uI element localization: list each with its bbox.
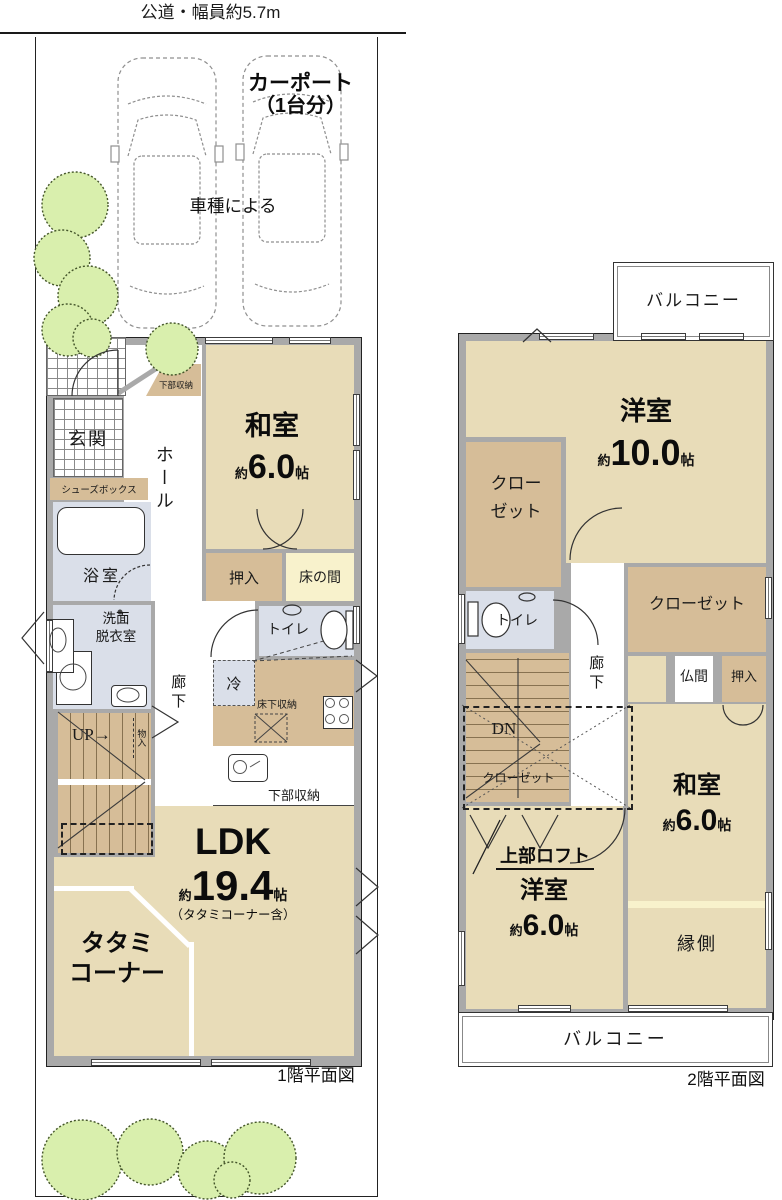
toilet-2f-label: トイレ [487, 614, 547, 630]
room-engawa [628, 908, 766, 1008]
yukashita-label: 床下収納 [246, 700, 308, 712]
shoes-box: シューズボックス [50, 478, 148, 500]
window [628, 1005, 728, 1012]
stove-icon [323, 696, 353, 729]
washitsu-2f-name: 和室 [637, 772, 757, 800]
room-toilet-1f: トイレ [259, 606, 354, 656]
under-stairs-storage [61, 823, 153, 855]
bathtub-icon [57, 507, 145, 555]
ldk-name: LDK [163, 821, 303, 864]
entrance-porch [46, 337, 126, 396]
butsuma-label: 仏間 [672, 670, 716, 686]
washitsu-1f-size: 約6.0帖 [207, 448, 337, 487]
balcony-top-label: バルコニー [614, 291, 773, 311]
sink-icon [111, 685, 147, 707]
youshitsu-10-unit: 帖 [681, 452, 695, 468]
kitchen-sink-icon [228, 754, 268, 782]
corridor-1f-label: 廊下 [168, 667, 185, 719]
window [518, 1005, 571, 1012]
washitsu-2f-step [628, 656, 666, 702]
youshitsu-10-size: 約10.0帖 [546, 432, 746, 473]
room-tokonoma: 床の間 [286, 553, 354, 601]
ldk-size-num: 19.4 [192, 862, 274, 909]
kabu-shunou-kitchen-label: 下部収納 [254, 789, 334, 804]
oshiire-2f-label: 押入 [722, 670, 766, 685]
window [765, 892, 772, 950]
ldk-unit: 帖 [273, 887, 287, 903]
window [289, 337, 331, 344]
window [91, 1059, 201, 1066]
road-label: 公道・幅員約5.7m [108, 3, 313, 23]
window [353, 450, 360, 500]
oshiire-1f-label: 押入 [229, 567, 259, 588]
floor1-caption: 1階平面図 [266, 1066, 366, 1086]
tatami-separator-v [189, 942, 194, 1056]
ldk-approx: 約 [179, 888, 192, 903]
washitsu-2f-unit: 帖 [717, 817, 731, 833]
window [211, 1059, 311, 1066]
floor1-plan: 玄関 下部収納 シューズボックス 押入 床の間 浴室 洗面 脱衣室 トイレ [46, 337, 362, 1067]
bath-label: 浴室 [53, 562, 151, 586]
floor2-caption: 2階平面図 [676, 1070, 776, 1090]
room-youshitsu-6 [466, 806, 623, 1009]
window [458, 594, 465, 644]
youshitsu-6-size: 約6.0帖 [474, 909, 614, 944]
hall-label: ホール [153, 423, 174, 535]
room-washitsu-2f [628, 704, 766, 901]
closet-1-label1: クロー [476, 474, 556, 494]
carport-title-line2: （1台分） [243, 95, 358, 118]
window [699, 333, 744, 340]
washitsu-2f-approx: 約 [663, 818, 676, 833]
corridor-2f-label: 廊下 [586, 649, 603, 699]
senmen-label-line1: 洗面 [83, 611, 149, 627]
youshitsu-10-size-num: 10.0 [610, 432, 680, 473]
tokonoma-label: 床の間 [299, 567, 341, 587]
washitsu-2f-size-num: 6.0 [676, 804, 718, 837]
ldk-size: 約19.4帖 [143, 862, 323, 910]
youshitsu-6-size-num: 6.0 [523, 909, 565, 942]
shoes-box-label: シューズボックス [61, 482, 136, 496]
tatami-corner-label1: タタミ [55, 930, 179, 958]
youshitsu-6-approx: 約 [510, 923, 523, 938]
window [641, 333, 686, 340]
corridor-by-toilet [213, 601, 255, 660]
youshitsu-10-name: 洋室 [566, 397, 726, 427]
closet-1-label2: ゼット [476, 502, 556, 522]
engawa-divider [628, 901, 766, 908]
youshitsu-10-approx: 約 [597, 453, 610, 468]
balcony-bottom-label: バルコニー [459, 1029, 772, 1050]
balcony-bottom: バルコニー [458, 1012, 773, 1067]
window [765, 577, 772, 619]
floor2-plan: 洋室 約10.0帖 クロー ゼット トイレ 廊下 クローゼット 仏間 押入 DN… [458, 333, 774, 1020]
road-line [0, 32, 406, 34]
engawa-label: 縁側 [647, 934, 747, 955]
washitsu-2f-size: 約6.0帖 [627, 804, 767, 839]
fridge-label: 冷 [226, 673, 241, 694]
balcony-top: バルコニー [613, 262, 774, 341]
loft-label: 上部ロフト [496, 846, 594, 870]
washitsu-1f-approx: 約 [235, 466, 248, 481]
tatami-separator-h [54, 886, 134, 891]
room-washitsu-1f [206, 345, 354, 549]
genkan-label: 玄関 [68, 425, 108, 451]
carport-title-line1: カーポート [243, 72, 358, 96]
monoire-label: 物入 [133, 718, 146, 758]
carport-note: 車種による [177, 196, 289, 216]
closet-2-label: クローゼット [631, 596, 763, 614]
floorplan-page: 公道・幅員約5.7m カーポート （1台分） 車種による 玄関 下部収納 シュー… [0, 0, 782, 1200]
ldk-note: （タタミコーナー含） [133, 908, 333, 922]
window [458, 931, 465, 986]
youshitsu-6-unit: 帖 [564, 922, 578, 938]
window [353, 394, 360, 446]
washitsu-1f-size-num: 6.0 [248, 448, 295, 486]
toilet-1f-label: トイレ [267, 619, 309, 639]
youshitsu-6-name: 洋室 [484, 877, 604, 905]
loft-outline [463, 706, 633, 810]
window [46, 620, 53, 672]
window [539, 333, 594, 340]
window [353, 606, 360, 644]
senmen-label-line2: 脱衣室 [83, 629, 149, 645]
window [205, 337, 273, 344]
tatami-corner-label2: コーナー [49, 960, 185, 988]
washitsu-1f-name: 和室 [227, 411, 317, 442]
washitsu-1f-unit: 帖 [295, 465, 309, 481]
room-bath: 浴室 [53, 502, 151, 601]
room-oshiire-1f: 押入 [206, 553, 282, 601]
stairs-up-label: UP→ [72, 725, 111, 745]
room-genkan: 玄関 [53, 398, 123, 477]
kabu-shunou-top-label: 下部収納 [159, 379, 193, 391]
stairs-landing [58, 779, 151, 785]
